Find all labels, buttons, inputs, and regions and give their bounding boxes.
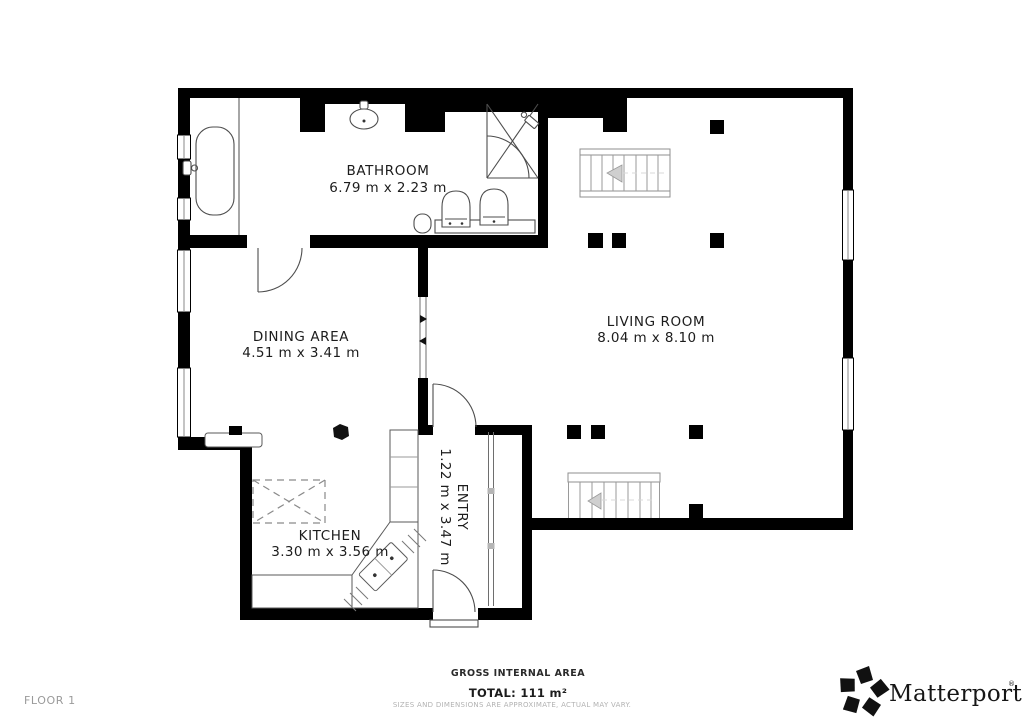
matterport-pinwheel-icon (836, 666, 891, 719)
wall-top (178, 88, 853, 98)
column (710, 233, 724, 248)
living-dims: 8.04 m x 8.10 m (597, 330, 715, 346)
dining-label: DINING AREA (253, 329, 349, 345)
wall-living-notch (603, 118, 627, 132)
wall-living-topleft (548, 98, 627, 118)
toilet (480, 189, 508, 225)
floor-label: FLOOR 1 (24, 694, 76, 707)
wall-entry-top-left (418, 425, 433, 435)
toilet (442, 191, 470, 227)
column (567, 425, 581, 439)
sink (325, 101, 405, 132)
window (178, 198, 191, 220)
footer: FLOOR 1 GROSS INTERNAL AREA TOTAL: 111 m… (24, 668, 631, 709)
column (710, 120, 724, 134)
bathtub-tap-icon (183, 161, 198, 175)
window (843, 358, 854, 430)
light-fixture-hexagon (333, 424, 349, 440)
disclaimer-text: SIZES AND DIMENSIONS ARE APPROXIMATE, AC… (393, 701, 631, 709)
pedestal (414, 214, 431, 233)
column (612, 233, 626, 248)
kitchen-dims: 3.30 m x 3.56 m (271, 544, 389, 560)
gross-area-title: GROSS INTERNAL AREA (451, 668, 585, 679)
entry-label: ENTRY (454, 484, 470, 531)
dining-dims: 4.51 m x 3.41 m (242, 345, 360, 361)
windows (178, 135, 854, 606)
wall-kitchen-left (240, 450, 252, 612)
wall-entry-top-right (475, 425, 532, 435)
window (178, 368, 191, 437)
entry-dims: 1.22 m x 3.47 m (437, 448, 453, 566)
column (588, 233, 603, 248)
matterport-logo: Matterport ® (836, 666, 1022, 719)
bathtub (196, 127, 234, 215)
stair-direction-arrow (588, 493, 601, 509)
entry-inner-door (433, 384, 476, 427)
wall-shower-top (445, 98, 548, 112)
wall-dining-living-a (418, 235, 428, 297)
entry-glass-wall (488, 432, 495, 606)
brand-wordmark: Matterport (889, 681, 1023, 707)
window (843, 190, 854, 260)
wall-bottom-kitchen (240, 608, 433, 620)
wall-dining-living-b (418, 378, 428, 425)
trademark-symbol: ® (1008, 680, 1015, 688)
total-area-value: TOTAL: 111 m² (469, 686, 567, 700)
bathroom-dims: 6.79 m x 2.23 m (329, 180, 447, 196)
kitchen-fixtures (205, 424, 426, 611)
kitchen-label: KITCHEN (299, 528, 362, 544)
shower (487, 104, 539, 178)
bathroom-label: BATHROOM (347, 163, 430, 179)
wall-column-bump (689, 504, 703, 518)
floorplan-page: BATHROOM 6.79 m x 2.23 m DINING AREA 4.5… (0, 0, 1024, 724)
wall-right (843, 88, 853, 528)
entry-label-group: ENTRY 1.22 m x 3.47 m (437, 448, 470, 566)
living-label: LIVING ROOM (607, 314, 705, 330)
window (178, 250, 191, 312)
door-threshold (430, 620, 478, 627)
window (178, 135, 191, 159)
column (591, 425, 605, 439)
floorplan-canvas: BATHROOM 6.79 m x 2.23 m DINING AREA 4.5… (0, 0, 1024, 724)
entry-front-door (430, 570, 478, 627)
wall-bottom-living (523, 518, 853, 530)
wall-bathroom-right (538, 108, 548, 248)
bathroom-door (258, 248, 302, 292)
staircase-lower (568, 473, 660, 518)
ceiling-opening-dashed (253, 480, 325, 523)
wall-bathroom-bottom-a (178, 235, 247, 248)
glass-partition (418, 297, 428, 378)
staircase-upper (580, 149, 670, 197)
wall-bathroom-bottom-b (310, 235, 548, 248)
column (689, 425, 703, 439)
